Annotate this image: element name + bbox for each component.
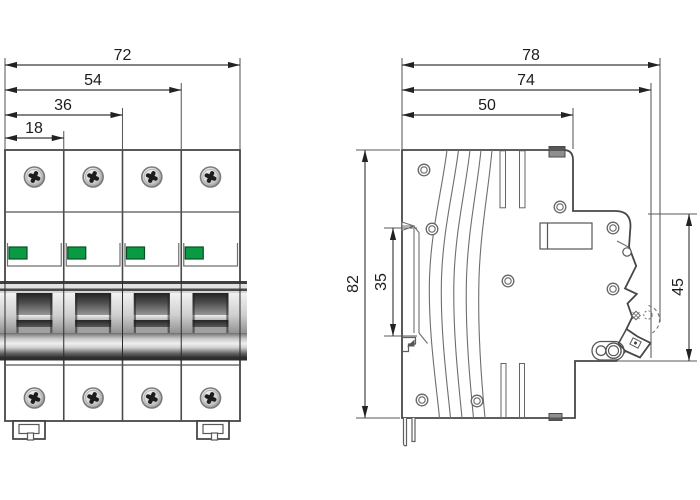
dimension-front-section: 45 — [670, 214, 689, 361]
handle-bar-cylinder — [0, 333, 247, 358]
mcb-dimension-drawing: 72 54 36 18 — [0, 0, 700, 500]
screw-head — [24, 167, 44, 187]
dimension-label: 78 — [522, 47, 540, 64]
technical-drawing-canvas: 72 54 36 18 — [0, 0, 700, 500]
rivet — [554, 201, 566, 213]
dimension-total-depth: 78 — [402, 47, 660, 65]
dimension-three-pole: 54 — [5, 72, 181, 90]
dimension-handle-depth: 74 — [402, 72, 651, 90]
toggle-handle — [193, 293, 229, 333]
rivet — [426, 223, 438, 235]
status-indicator-window — [9, 247, 27, 259]
toggle-handle — [16, 293, 52, 333]
rivet — [416, 394, 428, 406]
dimension-total-height: 82 — [345, 150, 365, 418]
lever-pivot-hole — [623, 248, 631, 256]
dimension-label: 35 — [373, 273, 390, 291]
rivet — [418, 164, 430, 176]
rivet — [607, 222, 619, 234]
dimension-label: 45 — [670, 278, 687, 296]
status-indicator-window — [127, 247, 145, 259]
status-indicator-window — [68, 247, 86, 259]
status-indicator-window — [185, 247, 203, 259]
rivet — [607, 283, 619, 295]
dimension-label: 36 — [54, 97, 72, 114]
handle-band — [0, 281, 247, 361]
handle-travel-arc — [648, 306, 659, 334]
toggle-handle — [75, 293, 111, 333]
din-clip-foot — [197, 421, 229, 440]
dimension-label: 74 — [517, 72, 535, 89]
dimension-label: 82 — [345, 275, 362, 293]
screw-head — [24, 388, 44, 408]
rivet — [502, 275, 514, 287]
dimension-label: 50 — [478, 97, 496, 114]
front-view: 72 54 36 18 — [0, 47, 247, 440]
toggle-handle — [134, 293, 170, 333]
dimension-one-pole: 18 — [5, 120, 64, 138]
dimension-base-depth: 50 — [402, 97, 573, 115]
top-clip-tab — [549, 147, 565, 158]
din-clip-foot — [13, 421, 45, 440]
screw-head — [201, 388, 221, 408]
rivet — [471, 395, 483, 407]
dimension-total-width: 72 — [5, 47, 240, 65]
dimension-label: 18 — [25, 120, 43, 137]
dimension-two-pole: 36 — [5, 97, 123, 115]
screw-head — [83, 388, 103, 408]
screw-head — [142, 167, 162, 187]
screw-head — [201, 167, 221, 187]
dimension-din-recess: 35 — [373, 228, 393, 336]
screw-head — [83, 167, 103, 187]
dimension-label: 54 — [84, 72, 102, 89]
bottom-clip-tab — [549, 414, 562, 421]
dimension-label: 72 — [114, 47, 132, 64]
screw-head — [142, 388, 162, 408]
front-dimensions: 72 54 36 18 — [5, 47, 240, 149]
side-view: 78 74 50 82 35 45 — [345, 47, 697, 446]
